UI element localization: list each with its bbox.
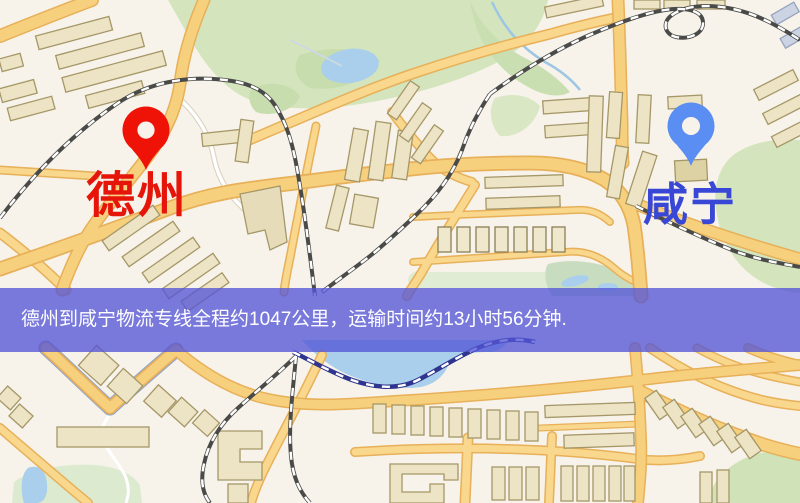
logistics-map-image: 德州 咸宁 德州到咸宁物流专线全程约1047公里，运输时间约13小时56分钟. (0, 0, 800, 503)
route-info-text: 德州到咸宁物流专线全程约1047公里，运输时间约13小时56分钟. (21, 309, 567, 330)
map-canvas (0, 0, 800, 503)
route-info-banner: 德州到咸宁物流专线全程约1047公里，运输时间约13小时56分钟. (0, 288, 800, 352)
destination-label: 咸宁 (643, 182, 737, 227)
origin-label: 德州 (86, 172, 188, 221)
